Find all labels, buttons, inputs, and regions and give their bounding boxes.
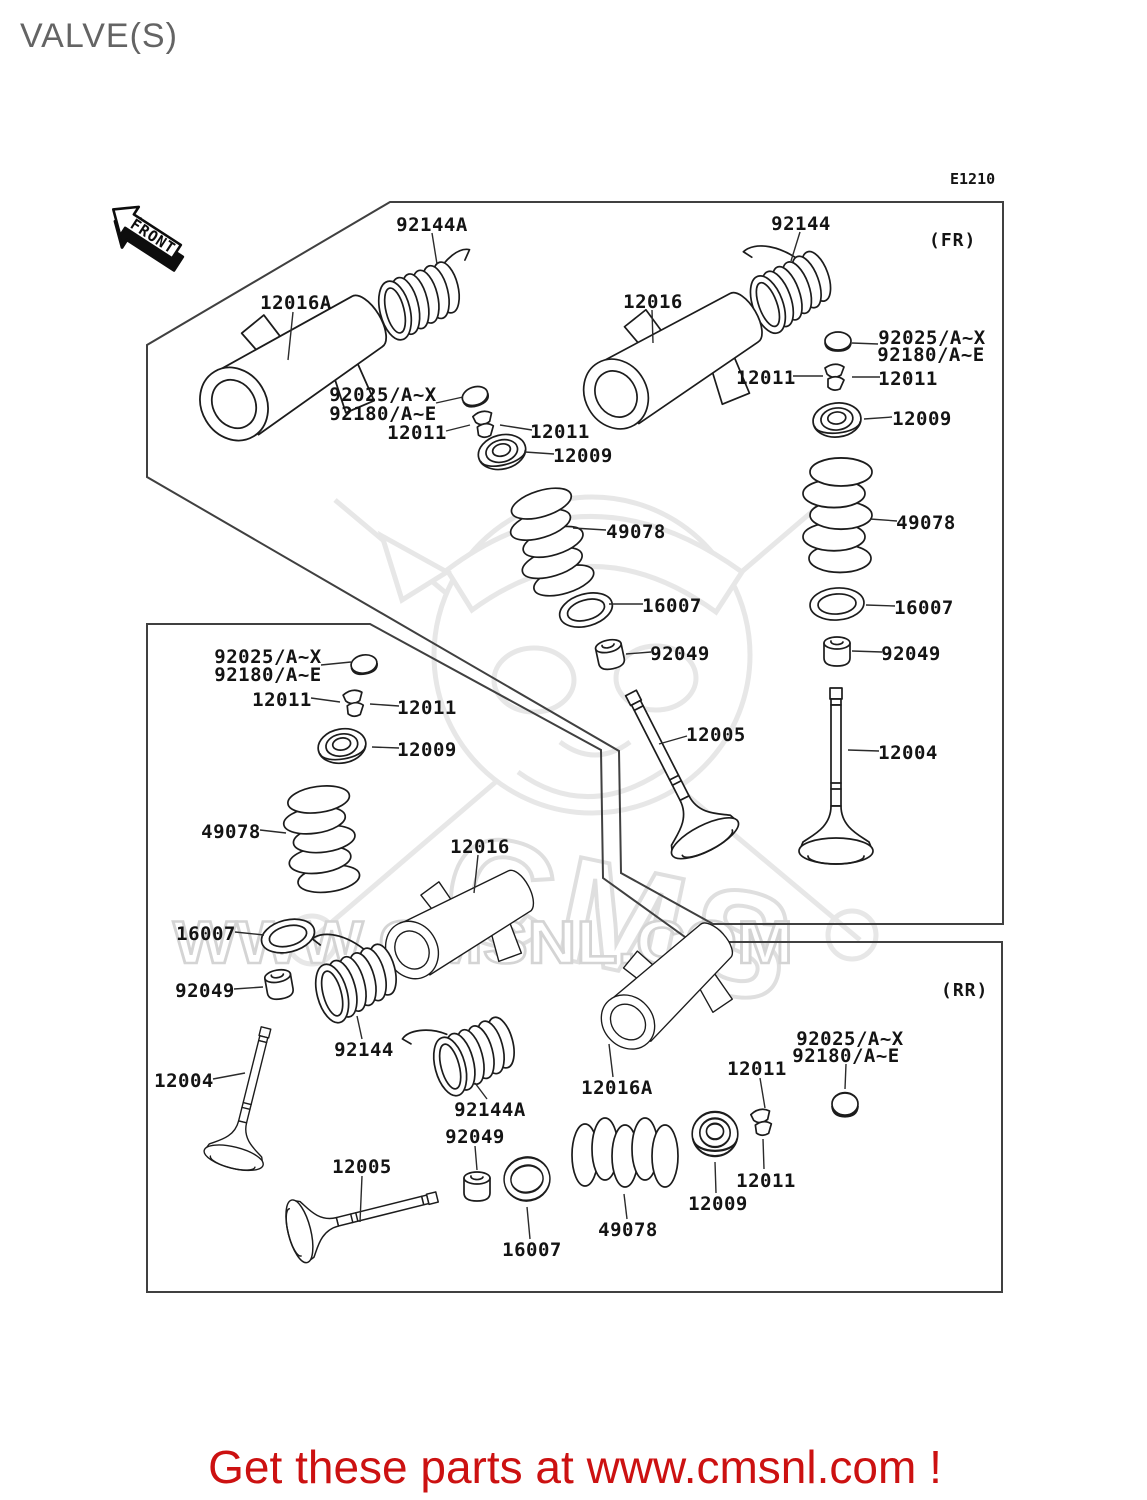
part-label-12011-rr-left: 12011	[252, 689, 312, 711]
retainer-92049-rr-mid	[464, 1172, 490, 1201]
leader-line	[311, 698, 340, 702]
part-label-12011-fr-left: 12011	[387, 422, 447, 444]
part-label-92180/A~E-rr-mid: 92180/A~E	[792, 1045, 899, 1067]
valve-12004-fr	[799, 688, 873, 864]
section-label-fr: (FR)	[929, 230, 976, 251]
part-label-16007-fr-left: 16007	[642, 595, 702, 617]
part-label-12011-fr-right: 12011	[736, 367, 796, 389]
part-label-12009-fr-left: 12009	[553, 445, 613, 467]
part-label-16007-rr-mid: 16007	[502, 1239, 562, 1261]
part-label-92144A-fr-left: 92144A	[396, 214, 468, 236]
part-label-49078-fr-right: 49078	[896, 512, 956, 534]
leader-line	[436, 397, 463, 403]
part-label-12016A-rr-mid: 12016A	[581, 1077, 653, 1099]
leader-line	[525, 452, 554, 454]
part-label-92144-fr-right: 92144	[771, 213, 831, 235]
oil-seal-12009-rr-right	[692, 1112, 738, 1156]
leader-line	[848, 750, 879, 751]
part-label-12009-rr-mid: 12009	[688, 1193, 748, 1215]
part-label-92180/A~E-rr-left: 92180/A~E	[214, 664, 321, 686]
part-label-16007-rr-left: 16007	[176, 923, 236, 945]
footer-link[interactable]: Get these parts at www.cmsnl.com !	[208, 1441, 942, 1493]
valve-12005-rr	[281, 1166, 445, 1266]
part-label-12009-rr-left: 12009	[397, 739, 457, 761]
page-title: VALVE(S)	[20, 17, 178, 55]
leader-line	[715, 1162, 716, 1193]
leader-line	[866, 605, 895, 606]
leader-line	[652, 310, 653, 343]
leader-line	[475, 1146, 477, 1170]
part-label-12004-rr-left: 12004	[154, 1070, 214, 1092]
leader-line	[624, 1194, 627, 1219]
shim-92025-rr-left	[350, 653, 379, 676]
valve-spring-49078-rr-mid	[572, 1118, 678, 1187]
part-label-92180/A~E-fr-right: 92180/A~E	[877, 344, 984, 366]
part-label-92144-rr-mid: 92144	[334, 1039, 394, 1061]
part-label-92049-rr-mid: 92049	[445, 1126, 505, 1148]
fiche-code: E1210	[950, 170, 995, 188]
retainer-92049-rr-left	[264, 968, 295, 1001]
shim-92025-fr-left	[460, 383, 491, 409]
oil-seal-12009-rr-left	[315, 725, 368, 767]
leader-line	[321, 662, 351, 665]
leader-line	[500, 425, 532, 430]
leader-line	[870, 519, 897, 521]
shim-92025-fr-right	[825, 332, 851, 351]
leader-line	[864, 417, 892, 419]
valve-keepers-12011-fr-left	[472, 410, 494, 438]
part-label-16007-fr-right: 16007	[894, 597, 954, 619]
leader-line	[845, 1064, 846, 1089]
part-label-12004-fr-right: 12004	[878, 742, 938, 764]
valve-keepers-12011-fr-right	[825, 364, 844, 390]
spring-seat-16007-rr-mid	[501, 1154, 554, 1205]
oil-seal-12009-fr-right	[811, 401, 862, 440]
leader-line	[234, 987, 263, 989]
valve-keepers-12011-rr-right	[750, 1108, 772, 1136]
mascot-bandana-knot-icon	[382, 536, 447, 600]
leader-line	[475, 1083, 487, 1099]
leader-line	[213, 1073, 245, 1079]
valve-spring-49078-fr-right	[803, 458, 872, 572]
leader-line	[852, 343, 878, 344]
section-label-rr: (RR)	[941, 980, 988, 1001]
part-label-12016A-fr-left: 12016A	[260, 292, 332, 314]
part-label-12011-rr-mid: 12011	[727, 1058, 787, 1080]
part-label-92049-rr-left: 92049	[175, 980, 235, 1002]
part-label-12005-rr-mid: 12005	[332, 1156, 392, 1178]
shim-92025-rr-right	[832, 1093, 858, 1117]
part-label-12016-fr-right: 12016	[623, 291, 683, 313]
valve-12004-rr	[202, 1021, 296, 1176]
leader-line	[372, 747, 399, 748]
front-direction-arrow: FRONT	[99, 196, 193, 278]
part-label-12016-rr-mid: 12016	[450, 836, 510, 858]
leader-line	[527, 1207, 530, 1239]
leader-line	[609, 1044, 613, 1077]
retainer-92049-fr-left	[594, 638, 625, 672]
leader-line	[446, 425, 470, 431]
part-label-49078-fr-left: 49078	[606, 521, 666, 543]
leader-line	[260, 830, 286, 833]
leader-line	[760, 1078, 765, 1108]
part-label-92144A-rr-mid: 92144A	[454, 1099, 526, 1121]
part-label-49078-rr-mid: 49078	[598, 1219, 658, 1241]
torsion-spring-92144a-rr	[401, 1008, 522, 1106]
parts-diagram: CMS WWW.CMSNL.COM 92144A12016A92025/A~X9…	[0, 0, 1147, 1500]
leader-line	[432, 233, 437, 264]
part-label-12005-fr-left: 12005	[686, 724, 746, 746]
retainer-92049-fr-right	[824, 637, 850, 666]
part-label-12011-fr-left: 12011	[530, 421, 590, 443]
parts-fiche-page: CMS WWW.CMSNL.COM 92144A12016A92025/A~X9…	[0, 0, 1147, 1500]
valve-spring-49078-rr-left	[279, 782, 362, 897]
leader-line	[852, 651, 882, 652]
part-label-12011-fr-right: 12011	[878, 368, 938, 390]
part-label-12009-fr-right: 12009	[892, 408, 952, 430]
torsion-spring-92144a-fr	[370, 248, 487, 343]
part-label-12011-rr-mid: 12011	[736, 1170, 796, 1192]
part-label-49078-rr-left: 49078	[201, 821, 261, 843]
valve-keepers-12011-rr-left	[343, 689, 365, 717]
spring-seat-16007-fr-right	[809, 586, 865, 622]
part-label-12011-rr-left: 12011	[397, 697, 457, 719]
part-label-92049-fr-left: 92049	[650, 643, 710, 665]
leader-line	[763, 1139, 764, 1169]
leader-line	[357, 1016, 362, 1039]
part-label-92049-fr-right: 92049	[881, 643, 941, 665]
leader-line	[370, 704, 399, 706]
